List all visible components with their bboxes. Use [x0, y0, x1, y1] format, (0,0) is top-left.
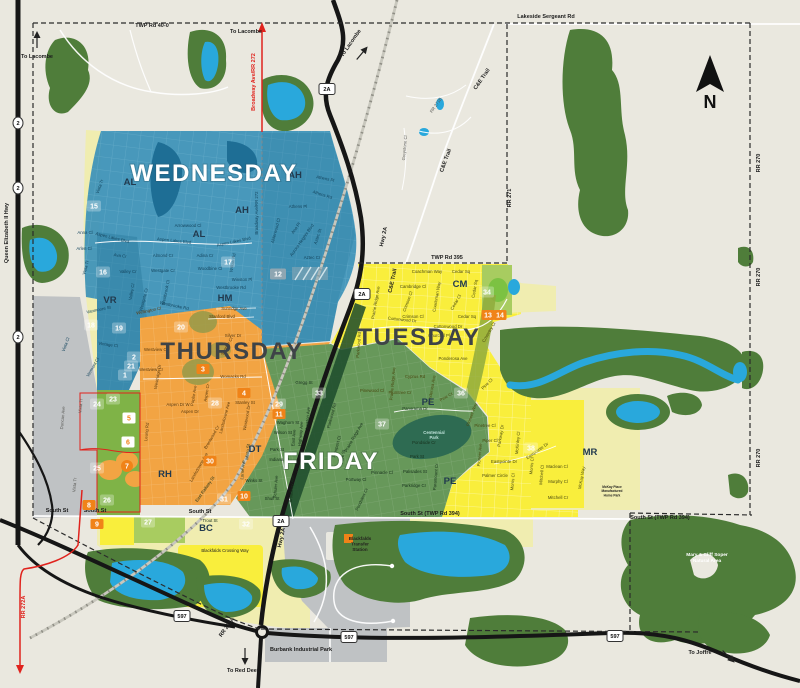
street-label: Murphy Cl — [548, 479, 568, 484]
zone-marker-34: 34 — [480, 287, 494, 298]
svg-text:2A: 2A — [323, 87, 330, 93]
street-label: Portway Cl — [346, 477, 367, 482]
svg-text:N: N — [704, 92, 717, 112]
zone-marker-37: 37 — [375, 419, 389, 430]
street-label: Palisades St — [403, 469, 428, 474]
collection-day-label: FRIDAY — [283, 448, 379, 475]
highway-shield-597: 597 — [174, 611, 190, 622]
svg-text:38: 38 — [527, 445, 535, 452]
road-label: Queen Elizabeth II Hwy — [4, 202, 10, 263]
collection-day-label: THURSDAY — [160, 338, 303, 365]
svg-text:5: 5 — [127, 415, 131, 422]
zone-marker-36: 36 — [454, 388, 468, 399]
svg-text:26: 26 — [103, 497, 111, 504]
zone-marker-31: 31 — [217, 494, 231, 505]
road-label: RR 270 — [756, 449, 762, 468]
zone-marker-32: 32 — [239, 519, 253, 530]
zone-marker-23: 23 — [106, 394, 120, 405]
street-label: Woodbine Cl — [198, 266, 223, 271]
road-label: To Red Deer — [227, 668, 260, 674]
zone-marker-15: 15 — [87, 201, 101, 212]
svg-text:597: 597 — [610, 634, 619, 640]
zone-marker-1: 1 — [118, 370, 132, 381]
zone-marker-26: 26 — [100, 495, 114, 506]
street-label: Coachman Way — [412, 269, 443, 274]
svg-text:29: 29 — [275, 401, 283, 408]
road-label-red: RR 272A — [21, 596, 27, 619]
svg-text:597: 597 — [344, 635, 353, 641]
svg-text:34: 34 — [483, 289, 491, 296]
svg-text:11: 11 — [275, 411, 283, 418]
street-label: Wilson St — [274, 430, 293, 435]
poi-label: McKay PlaceManufacturedHome Park — [602, 485, 623, 497]
svg-text:30: 30 — [206, 458, 214, 465]
svg-text:7: 7 — [125, 463, 129, 470]
collection-day-label: TUESDAY — [358, 324, 481, 351]
road-label: To Joffre — [688, 650, 711, 656]
zone-marker-33: 33 — [312, 388, 326, 399]
svg-text:6: 6 — [126, 439, 130, 446]
street-label: Blackfalds Crossing Way — [201, 548, 249, 553]
road-label: TWP Rd 395 — [431, 255, 463, 261]
svg-text:19: 19 — [115, 325, 123, 332]
street-label: Pondside Cr — [412, 440, 436, 445]
area-code-label: MR — [583, 447, 598, 458]
svg-text:2: 2 — [16, 186, 19, 192]
street-label: Arrowwood Cl — [175, 223, 202, 228]
zone-marker-18: 18 — [84, 320, 98, 331]
svg-text:32: 32 — [242, 521, 250, 528]
area-code-label: DT — [249, 444, 262, 455]
area-code-label: AL — [193, 229, 206, 240]
svg-text:2: 2 — [132, 354, 136, 361]
svg-text:3: 3 — [201, 366, 205, 373]
road-label: RR 271 — [507, 189, 513, 208]
highway-shield-597: 597 — [607, 631, 623, 642]
svg-text:28: 28 — [211, 400, 219, 407]
street-label: Eastpointe Dr — [491, 459, 518, 464]
street-label: Broadway Ave/RR 272 — [254, 191, 259, 235]
svg-text:9: 9 — [95, 521, 99, 528]
zone-marker-27: 27 — [141, 517, 155, 528]
area-code-label: RH — [158, 469, 172, 480]
street-label: Winston Pl — [232, 277, 253, 282]
street-label: Aztec Cr — [304, 255, 321, 260]
street-label: Pinewood Cl — [360, 388, 384, 393]
svg-text:27: 27 — [144, 519, 152, 526]
road-label: Lakeside Sergeant Rd — [517, 14, 574, 20]
zone-marker-8: 8 — [83, 500, 96, 510]
svg-text:597: 597 — [177, 614, 186, 620]
street-label: Aspen Dr W — [166, 402, 190, 407]
zone-marker-29: 29 — [272, 399, 286, 410]
road-label: South St (TWP Rd 394) — [400, 511, 460, 517]
svg-text:33: 33 — [315, 390, 323, 397]
street-label: Cedar Sq — [458, 314, 477, 319]
svg-text:37: 37 — [378, 421, 386, 428]
road-label: South St — [189, 509, 212, 515]
svg-text:15: 15 — [90, 203, 98, 210]
street-label: Ponderosa Ave — [438, 356, 468, 361]
zone-marker-28: 28 — [208, 398, 222, 409]
street-label: Cedar Sq — [452, 269, 471, 274]
zone-marker-10: 10 — [238, 491, 251, 501]
highway-shield-2A: 2A — [273, 516, 289, 527]
highway-shield-2: 2 — [13, 117, 23, 129]
street-label: Valley Cr — [119, 269, 137, 274]
svg-text:12: 12 — [274, 271, 282, 278]
zone-marker-13: 13 — [482, 310, 495, 320]
svg-text:2: 2 — [16, 335, 19, 341]
svg-text:31: 31 — [220, 496, 228, 503]
svg-text:36: 36 — [457, 390, 465, 397]
zone-marker-25: 25 — [90, 463, 104, 474]
street-label: Stanley St — [235, 400, 255, 405]
road-label: South St — [46, 508, 69, 514]
street-label: Adina Cr — [197, 253, 214, 258]
street-label: Palmer Circle — [482, 473, 508, 478]
street-label: Mitchell Cr — [548, 495, 569, 500]
zone-marker-3: 3 — [197, 364, 210, 374]
svg-text:8: 8 — [87, 502, 91, 509]
svg-text:14: 14 — [496, 312, 504, 319]
svg-text:24: 24 — [93, 401, 101, 408]
svg-text:23: 23 — [109, 396, 117, 403]
zone-marker-4: 4 — [238, 388, 251, 398]
blackfalds-collection-day-map: Vista TrAnna ClAspen Lakes BlvdArlen ClV… — [0, 0, 800, 688]
street-label: Athens Pl — [289, 204, 307, 209]
svg-text:21: 21 — [127, 363, 135, 370]
street-label: Waghorn St — [277, 420, 300, 425]
road-label: To Lacombe — [230, 29, 262, 35]
street-label: Parkridge Cr — [402, 483, 427, 488]
street-label: Westbrooke Rd — [216, 285, 246, 290]
area-code-label: BC — [199, 523, 213, 534]
zone-marker-7: 7 — [121, 460, 133, 472]
street-label: Winks St — [246, 478, 264, 483]
collection-day-label: WEDNESDAY — [130, 160, 297, 187]
zone-marker-5: 5 — [123, 413, 136, 424]
street-label: Womacks Rd — [220, 374, 246, 379]
svg-text:20: 20 — [177, 324, 185, 331]
street-label: Aspen Dr — [181, 409, 199, 414]
area-code-label: AH — [235, 205, 249, 216]
highway-shield-2A: 2A — [319, 84, 335, 95]
street-label: Almond Cr — [153, 253, 174, 258]
area-code-label: VR — [103, 295, 116, 306]
area-code-label: HM — [218, 293, 233, 304]
svg-text:16: 16 — [99, 269, 107, 276]
road-label-red: Broadway Ave/RR 272 — [251, 53, 257, 111]
svg-text:2: 2 — [16, 121, 19, 127]
street-label: Maclean Cl — [546, 464, 568, 469]
highway-shield-597: 597 — [341, 632, 357, 643]
svg-text:25: 25 — [93, 465, 101, 472]
street-label: Piper Cl — [482, 438, 497, 443]
zone-marker-19: 19 — [112, 323, 126, 334]
street-label: Park St — [410, 454, 425, 459]
highway-shield-2A: 2A — [354, 289, 370, 300]
area-code-label: PE — [444, 476, 457, 487]
street-label: Gregg St — [295, 380, 313, 385]
street-label: Anna Cl — [77, 230, 92, 235]
zone-marker-6: 6 — [122, 437, 135, 448]
zone-marker-38: 38 — [524, 443, 538, 454]
street-label: Cyprus Rd — [405, 374, 426, 379]
map-canvas: Vista TrAnna ClAspen Lakes BlvdArlen ClV… — [0, 0, 800, 688]
zone-marker-14: 14 — [494, 310, 507, 320]
road-label: RR 270 — [756, 154, 762, 173]
street-label: Pinetree Cl — [474, 423, 495, 428]
road-label: South St (TWP Rd 394) — [630, 515, 690, 521]
svg-text:2A: 2A — [277, 519, 284, 525]
zone-marker-9: 9 — [91, 519, 104, 529]
svg-text:10: 10 — [240, 493, 248, 500]
zone-marker-30: 30 — [204, 456, 217, 466]
street-label: Cambridge Cl — [400, 284, 426, 289]
road-label: Burbank Industrial Park — [270, 647, 333, 653]
area-code-label: PE — [422, 397, 435, 408]
svg-text:17: 17 — [224, 259, 232, 266]
highway-shield-2: 2 — [13, 331, 23, 343]
zone-marker-20: 20 — [174, 322, 188, 333]
zone-marker-24: 24 — [90, 399, 104, 410]
svg-text:1: 1 — [123, 372, 127, 379]
zone-marker-16: 16 — [96, 267, 110, 278]
road-label: RR 270 — [756, 268, 762, 287]
area-code-label: CM — [453, 279, 468, 290]
street-label: Westgate Cr — [151, 268, 175, 273]
zone-marker-12: 12 — [270, 269, 286, 280]
road-label: To Lacombe — [21, 54, 53, 60]
street-label: Stanford Blvd — [209, 314, 235, 319]
street-label: Sunridge Ave — [221, 306, 247, 311]
zone-marker-17: 17 — [221, 257, 235, 268]
svg-text:2A: 2A — [358, 292, 365, 298]
svg-text:13: 13 — [484, 312, 492, 319]
svg-text:4: 4 — [242, 390, 246, 397]
highway-shield-2: 2 — [13, 182, 23, 194]
road-label: TWP Rd 40-0 — [135, 23, 169, 29]
svg-text:18: 18 — [87, 322, 95, 329]
street-label: Arlen Cl — [76, 246, 91, 251]
zone-marker-11: 11 — [273, 409, 286, 419]
